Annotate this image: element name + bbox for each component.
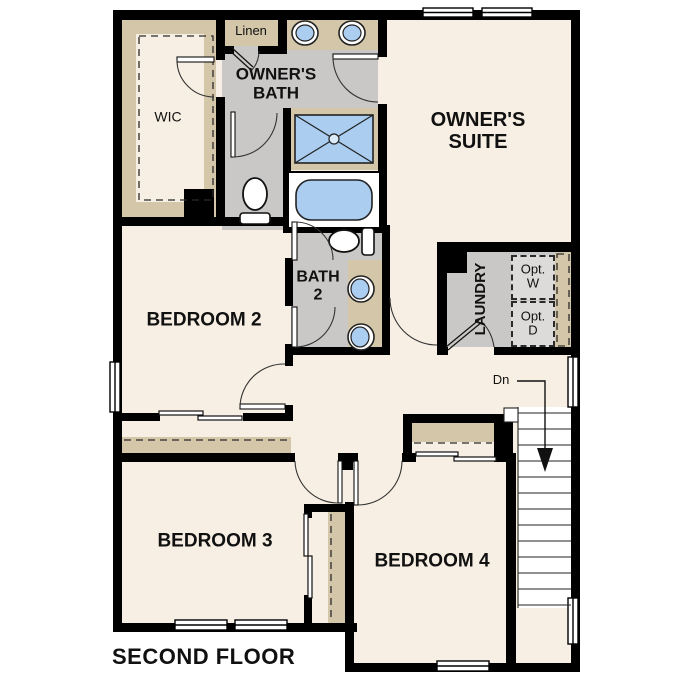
owners-suite-line2: SUITE (431, 131, 526, 153)
bedroom4-closet-bypass-door (416, 452, 458, 456)
shower (295, 115, 373, 163)
opt-dryer-line2: D (521, 324, 546, 338)
wic-door-arc (177, 60, 214, 97)
owners-bath-toilet (240, 178, 270, 224)
bedroom3-door-leaf (338, 461, 342, 503)
stairs-down-label: Dn (493, 373, 510, 387)
laundry-label-text: LAUNDRY (472, 263, 489, 336)
bedroom2-closet-bypass-door (198, 416, 242, 420)
sink-basin (351, 279, 369, 299)
laundry-label: LAUNDRY (473, 263, 490, 336)
bedroom4-label: BEDROOM 4 (374, 552, 489, 573)
page-title: SECOND FLOOR (112, 645, 295, 669)
bedroom2-door-leaf (240, 404, 285, 409)
toilet-tank (362, 228, 374, 255)
bedroom2-closet-bypass-door (159, 411, 203, 415)
owners-suite-label: OWNER'S SUITE (431, 109, 526, 153)
bedroom3-label: BEDROOM 3 (157, 532, 272, 553)
owners-bath-line2: BATH (236, 84, 317, 103)
owners-bath-label: OWNER'S BATH (236, 65, 317, 102)
toilet-room-door-arc (233, 113, 277, 157)
bedroom4-door-arc (358, 461, 402, 505)
page-title-text: SECOND FLOOR (112, 644, 295, 669)
toilet-tank (240, 213, 270, 224)
dn-label-text: Dn (493, 372, 510, 387)
bath2-line1: BATH (296, 268, 339, 286)
bath2-line2: 2 (296, 286, 339, 304)
owners-suite-line1: OWNER'S (431, 109, 526, 131)
sink-basin (351, 327, 369, 347)
bath2-upper-door-leaf (292, 222, 297, 260)
sink-basin (296, 25, 314, 41)
opt-dryer-line1: Opt. (521, 310, 546, 324)
bedroom4-label-text: BEDROOM 4 (374, 551, 489, 572)
bath2-label: BATH 2 (296, 268, 339, 303)
wic-label: WIC (154, 109, 181, 124)
bedroom3-closet-bypass-door (308, 556, 312, 598)
linen-label: Linen (235, 24, 267, 38)
shower-drain-icon (329, 134, 339, 144)
bedroom2-label-text: BEDROOM 2 (146, 310, 261, 331)
bedroom2-door-arc (240, 364, 285, 407)
stairs-down-arrow-icon (517, 381, 553, 472)
toilet-icon (329, 230, 359, 252)
bedroom4-door-leaf (354, 461, 358, 505)
plan-linework (0, 0, 687, 687)
sink-basin (343, 25, 361, 41)
owners-bath-sinks (292, 21, 365, 45)
bath2-sinks (348, 276, 374, 350)
bath2-lower-door-leaf (292, 307, 297, 347)
opt-washer-line2: W (521, 277, 546, 291)
bedroom2-label: BEDROOM 2 (146, 311, 261, 332)
toilet-icon (243, 178, 267, 210)
optional-washer-label: Opt. W (521, 263, 546, 292)
bedroom3-door-arc (295, 461, 338, 503)
owners-suite-door-arc (390, 298, 437, 345)
owners-suite-bath-door-arc (333, 57, 378, 102)
floor-plan: WIC Linen OWNER'S BATH OWNER'S SUITE BED… (0, 0, 687, 687)
bedroom3-closet-bypass-door (304, 514, 308, 556)
bathtub (288, 172, 380, 228)
bath2-lower-door-arc (295, 307, 335, 347)
toilet-room-door-leaf (231, 112, 235, 157)
optional-dryer-label: Opt. D (521, 310, 546, 339)
bedroom3-label-text: BEDROOM 3 (157, 531, 272, 552)
linen-label-text: Linen (235, 23, 267, 38)
wic-door-leaf (177, 57, 214, 62)
laundry-shelf-dash (557, 254, 569, 346)
owners-bath-line1: OWNER'S (236, 65, 317, 84)
bath2-toilet (329, 228, 374, 255)
stair-newel (504, 408, 518, 422)
opt-washer-line1: Opt. (521, 263, 546, 277)
staircase (504, 407, 571, 608)
wic-label-text: WIC (154, 108, 181, 124)
owners-suite-bath-door-leaf (333, 54, 378, 59)
bedroom4-closet-bypass-door (454, 457, 496, 461)
